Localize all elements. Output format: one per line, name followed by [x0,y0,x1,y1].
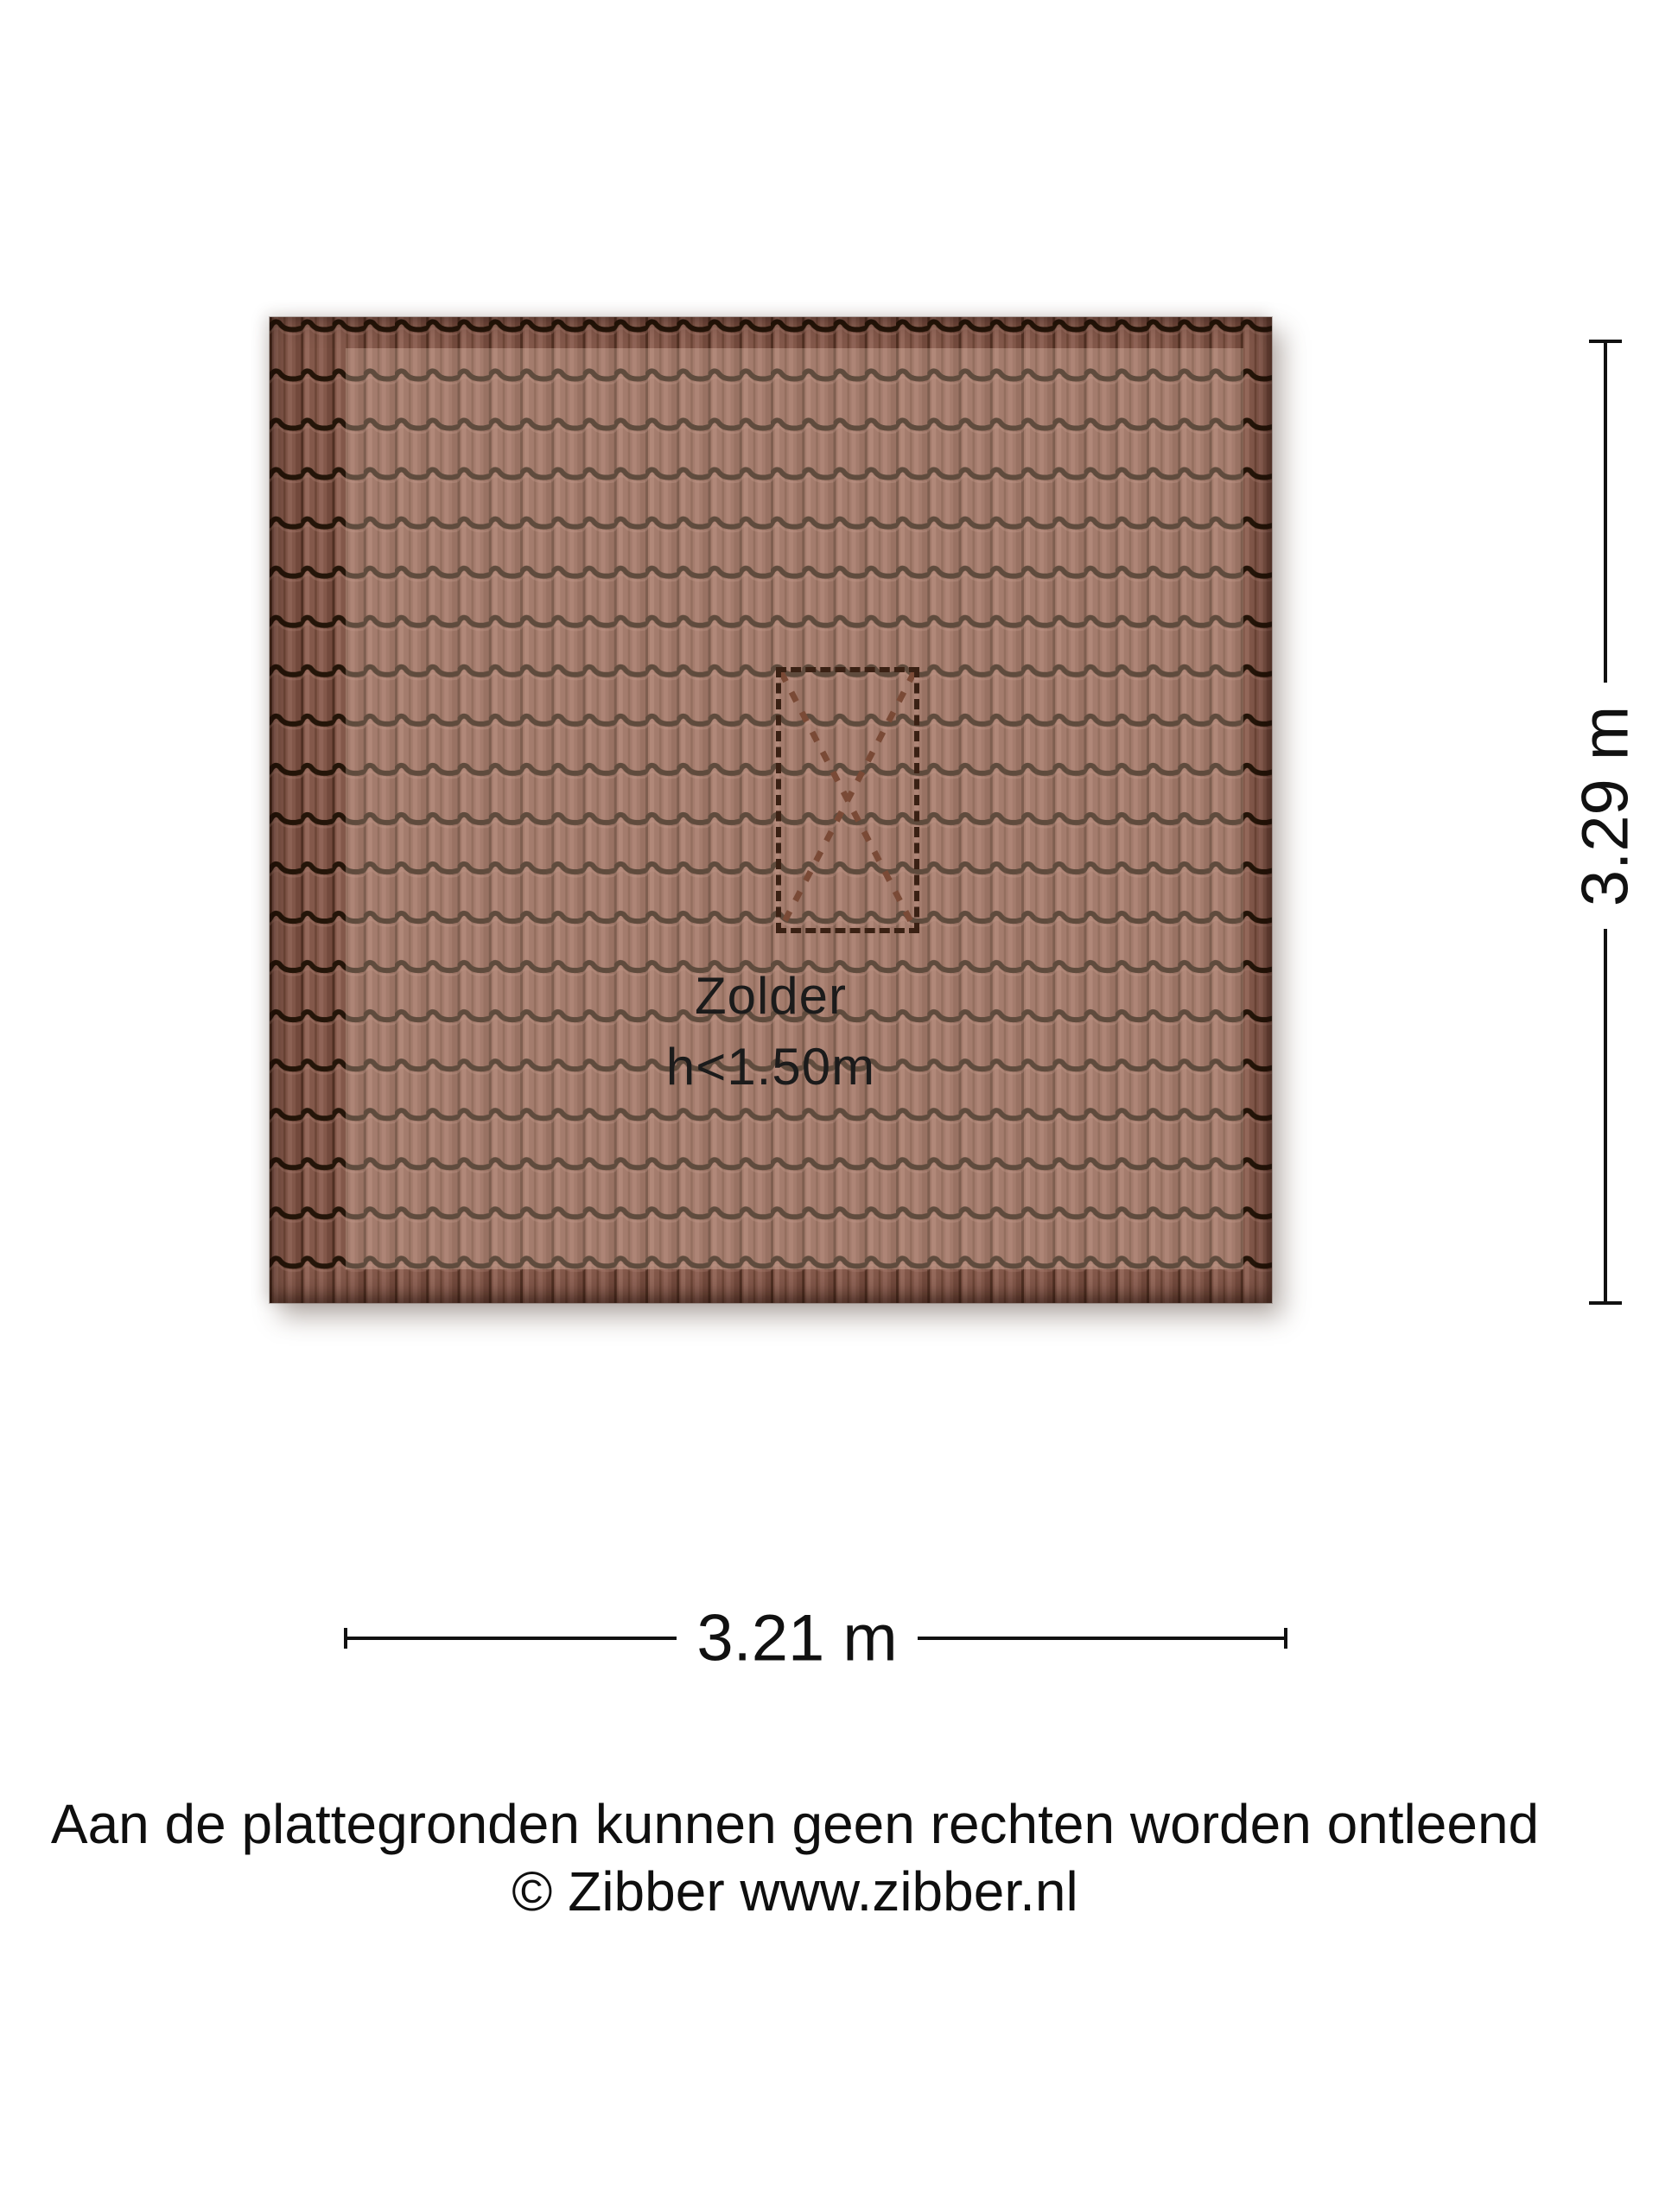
dimension-segment [1604,929,1607,1301]
dimension-segment [918,1637,1284,1640]
width-dimension-line: 3.21 m [344,1628,1287,1649]
copyright-text: © Zibber www.zibber.nl [0,1858,1590,1925]
height-dimension-line: 3.29 m [1589,340,1622,1305]
footer-text-block: Aan de plattegronden kunnen geen rechten… [0,1790,1590,1925]
width-dimension-label: 3.21 m [677,1601,918,1676]
room-name-label: Zolder [270,961,1272,1032]
dimension-segment [1604,343,1607,683]
disclaimer-text: Aan de plattegronden kunnen geen rechten… [0,1790,1590,1858]
floorplan-page: Zolder h<1.50m 3.29 m 3.21 m Aan de plat… [0,0,1659,2212]
height-dimension-label: 3.29 m [1568,706,1643,906]
room-height-label: h<1.50m [270,1032,1272,1103]
roof-window-icon [776,667,919,933]
room-label-block: Zolder h<1.50m [270,961,1272,1103]
dimension-tick [1589,1301,1622,1305]
dimension-segment [347,1637,677,1640]
dimension-tick [1284,1628,1287,1649]
roof-window-cross-icon [781,672,914,928]
roof-tile-area: Zolder h<1.50m [270,317,1272,1303]
